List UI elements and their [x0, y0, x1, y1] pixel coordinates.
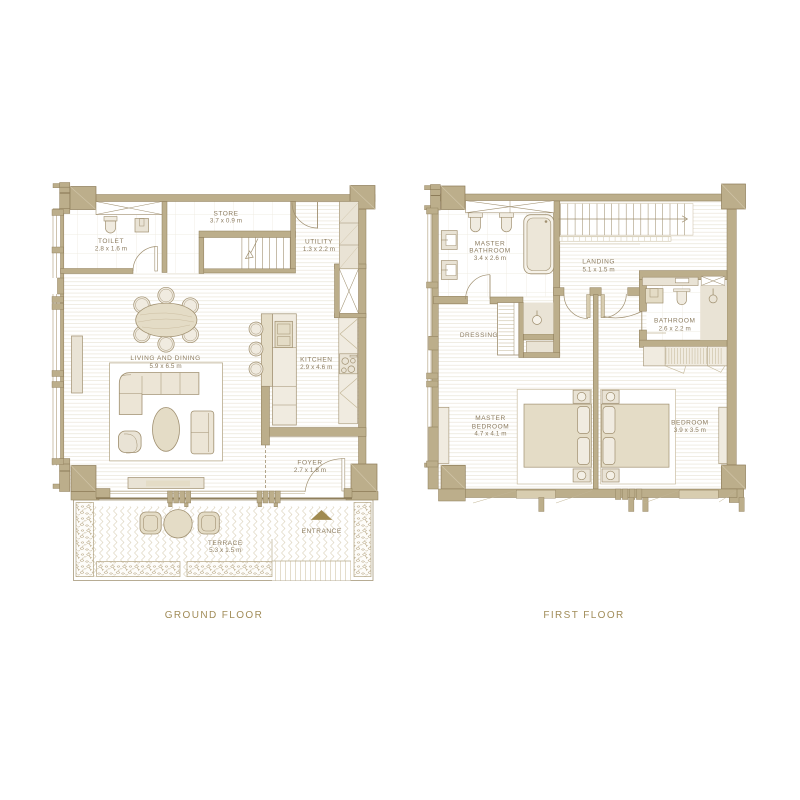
svg-text:3.7 x 0.9 m: 3.7 x 0.9 m: [210, 218, 242, 225]
svg-text:2.9 x 4.6 m: 2.9 x 4.6 m: [300, 364, 332, 371]
svg-text:BATHROOM: BATHROOM: [469, 248, 510, 255]
svg-text:LANDING: LANDING: [582, 259, 615, 266]
svg-text:MASTER: MASTER: [475, 415, 505, 422]
svg-text:3.9 x 3.5 m: 3.9 x 3.5 m: [674, 427, 706, 434]
svg-text:BEDROOM: BEDROOM: [671, 420, 708, 427]
svg-text:GROUND FLOOR: GROUND FLOOR: [165, 610, 263, 621]
svg-text:STORE: STORE: [213, 210, 238, 217]
svg-text:4.7 x 4.1 m: 4.7 x 4.1 m: [474, 431, 506, 438]
svg-text:MASTER: MASTER: [475, 241, 505, 248]
svg-text:2.6 x 2.2 m: 2.6 x 2.2 m: [659, 326, 691, 333]
svg-text:UTILITY: UTILITY: [305, 239, 333, 246]
svg-text:3.4 x 2.6 m: 3.4 x 2.6 m: [474, 255, 506, 262]
svg-text:LIVING AND DINING: LIVING AND DINING: [130, 355, 200, 362]
svg-text:5.3 x 1.5 m: 5.3 x 1.5 m: [209, 547, 241, 554]
svg-text:ENTRANCE: ENTRANCE: [302, 528, 342, 535]
svg-text:TOILET: TOILET: [98, 238, 124, 245]
svg-text:TERRACE: TERRACE: [208, 540, 243, 547]
svg-text:DRESSING: DRESSING: [460, 332, 498, 339]
svg-text:KITCHEN: KITCHEN: [300, 357, 332, 364]
svg-text:BEDROOM: BEDROOM: [472, 423, 509, 430]
svg-text:5.1 x 1.5 m: 5.1 x 1.5 m: [582, 266, 614, 273]
svg-text:FOYER: FOYER: [297, 460, 322, 467]
svg-text:2.7 x 1.8 m: 2.7 x 1.8 m: [294, 467, 326, 474]
svg-text:1.3 x 2.2 m: 1.3 x 2.2 m: [303, 246, 335, 253]
svg-text:BATHROOM: BATHROOM: [654, 318, 695, 325]
svg-text:5.9 x 6.5 m: 5.9 x 6.5 m: [149, 363, 181, 370]
svg-text:FIRST FLOOR: FIRST FLOOR: [543, 610, 624, 621]
svg-text:2.8 x 1.6 m: 2.8 x 1.6 m: [95, 245, 127, 252]
